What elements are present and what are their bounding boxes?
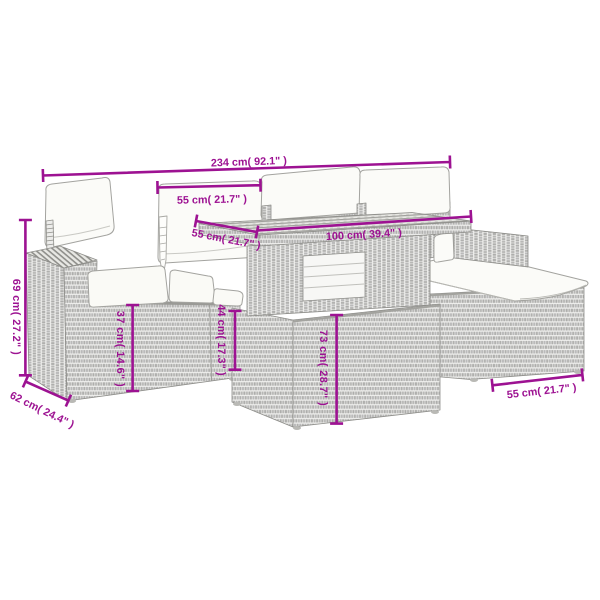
svg-text:44 cm( 17.3" ): 44 cm( 17.3" ) xyxy=(215,304,227,376)
svg-text:69 cm( 27.2" ): 69 cm( 27.2" ) xyxy=(10,279,22,355)
svg-text:73 cm( 28.7" ): 73 cm( 28.7" ) xyxy=(317,330,329,406)
svg-text:55 cm( 21.7" ): 55 cm( 21.7" ) xyxy=(177,193,248,207)
svg-text:234 cm( 92.1" ): 234 cm( 92.1" ) xyxy=(211,155,288,170)
svg-text:37 cm( 14.6" ): 37 cm( 14.6" ) xyxy=(114,311,126,387)
